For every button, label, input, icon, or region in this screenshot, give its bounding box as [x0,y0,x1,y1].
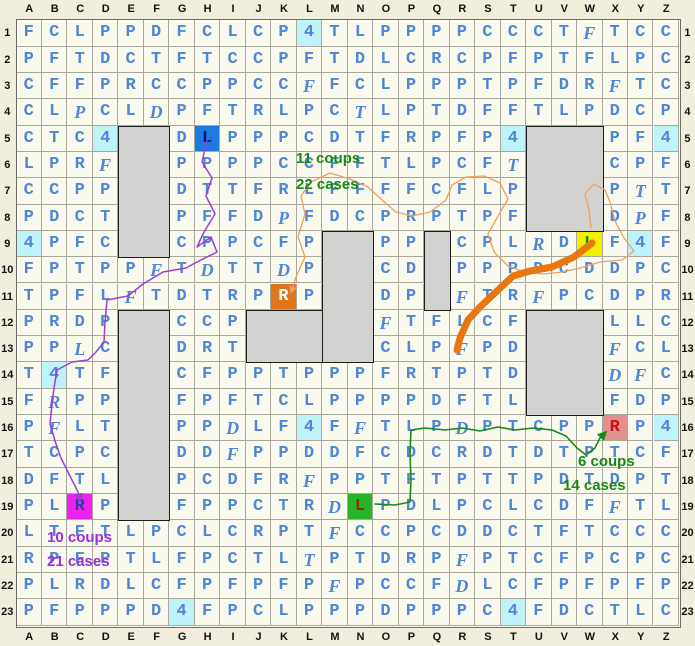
grid-cell[interactable]: P [399,73,424,99]
grid-cell[interactable]: C [17,178,42,204]
grid-cell[interactable]: R [271,178,296,204]
grid-cell[interactable]: C [144,73,169,99]
grid-cell[interactable]: P [399,389,424,415]
grid-cell[interactable]: P [297,573,322,599]
grid-cell[interactable]: L [373,73,398,99]
grid-cell[interactable]: P [399,231,424,257]
grid-cell[interactable]: P [424,152,449,178]
grid-cell[interactable]: T [93,205,118,231]
grid-cell[interactable]: F [195,362,220,388]
grid-cell[interactable]: T [246,389,271,415]
grid-cell[interactable]: D [373,284,398,310]
grid-cell[interactable]: P [424,126,449,152]
grid-cell[interactable]: F [450,389,475,415]
grid-cell[interactable]: D [399,257,424,283]
grid-cell[interactable]: T [220,257,245,283]
grid-cell[interactable]: D [526,441,551,467]
grid-cell[interactable]: C [399,573,424,599]
grid-cell[interactable]: C [169,520,194,546]
grid-cell[interactable]: P [399,99,424,125]
grid-cell[interactable]: P [195,73,220,99]
grid-cell[interactable]: P [373,205,398,231]
grid-cell[interactable]: C [220,520,245,546]
grid-cell[interactable]: D [552,599,577,625]
grid-cell[interactable]: D [475,441,500,467]
grid-cell[interactable]: F [450,178,475,204]
grid-cell[interactable]: L [399,415,424,441]
grid-cell[interactable]: D [271,257,296,283]
grid-cell[interactable]: C [348,520,373,546]
grid-cell[interactable]: T [348,126,373,152]
grid-cell[interactable]: F [246,468,271,494]
grid-cell[interactable]: T [475,362,500,388]
grid-cell[interactable]: P [475,231,500,257]
grid-cell[interactable]: P [577,99,602,125]
grid-cell[interactable]: P [93,389,118,415]
grid-cell[interactable]: L [399,152,424,178]
grid-cell[interactable]: P [169,415,194,441]
grid-cell[interactable]: C [220,547,245,573]
grid-cell[interactable]: R [271,468,296,494]
grid-cell[interactable]: P [603,573,628,599]
grid-cell[interactable]: T [246,547,271,573]
grid-cell[interactable]: P [348,362,373,388]
grid-cell[interactable]: P [628,284,653,310]
grid-cell[interactable]: T [271,494,296,520]
grid-cell[interactable]: T [67,47,92,73]
grid-cell[interactable]: C [348,73,373,99]
grid-cell[interactable]: C [373,520,398,546]
grid-cell[interactable]: C [450,152,475,178]
grid-cell[interactable]: P [322,468,347,494]
grid-cell[interactable]: C [373,336,398,362]
grid-cell[interactable]: P [220,494,245,520]
grid-cell[interactable]: D [475,520,500,546]
grid-cell[interactable]: D [144,99,169,125]
grid-cell[interactable]: F [169,389,194,415]
grid-cell[interactable]: L [42,99,67,125]
grid-cell[interactable]: D [603,362,628,388]
grid-cell[interactable]: C [67,126,92,152]
grid-cell[interactable]: C [654,20,679,46]
grid-cell[interactable]: L [195,520,220,546]
grid-cell[interactable]: D [501,362,526,388]
grid-cell[interactable]: P [322,362,347,388]
grid-cell[interactable]: P [424,205,449,231]
grid-cell[interactable]: T [603,599,628,625]
grid-cell[interactable]: T [118,547,143,573]
grid-cell[interactable]: F [271,573,296,599]
grid-cell[interactable]: F [654,152,679,178]
grid-cell[interactable]: D [577,257,602,283]
grid-cell[interactable]: T [348,99,373,125]
grid-cell[interactable]: D [169,284,194,310]
grid-cell[interactable]: P [450,468,475,494]
grid-cell[interactable]: L [501,231,526,257]
grid-cell[interactable]: D [322,441,347,467]
grid-cell[interactable]: T [144,284,169,310]
grid-cell[interactable]: P [17,494,42,520]
grid-cell[interactable]: C [603,547,628,573]
grid-cell[interactable]: C [93,336,118,362]
grid-cell[interactable]: C [654,547,679,573]
grid-cell[interactable]: P [475,47,500,73]
grid-cell[interactable]: L [42,573,67,599]
grid-cell[interactable]: R [297,494,322,520]
grid-cell[interactable]: D [603,205,628,231]
grid-cell[interactable]: T [552,47,577,73]
grid-cell[interactable]: L [424,494,449,520]
grid-cell[interactable]: R [399,547,424,573]
grid-cell[interactable]: L [628,310,653,336]
grid-cell[interactable]: P [577,415,602,441]
grid-cell[interactable]: L [475,573,500,599]
grid-cell[interactable]: C [118,47,143,73]
grid-cell[interactable]: T [399,310,424,336]
grid-cell[interactable]: F [552,520,577,546]
grid-cell[interactable]: D [424,389,449,415]
grid-cell[interactable]: 4 [501,599,526,625]
grid-cell[interactable]: R [195,336,220,362]
grid-cell[interactable]: P [17,310,42,336]
grid-cell[interactable]: T [526,99,551,125]
grid-cell[interactable]: P [475,336,500,362]
grid-cell[interactable]: 4 [169,599,194,625]
grid-cell[interactable]: D [42,205,67,231]
grid-cell[interactable]: T [195,178,220,204]
grid-cell[interactable]: C [169,310,194,336]
grid-cell[interactable]: C [475,310,500,336]
grid-cell[interactable]: P [552,284,577,310]
grid-cell[interactable]: F [628,362,653,388]
grid-cell[interactable]: F [322,573,347,599]
grid-cell[interactable]: F [67,73,92,99]
grid-cell[interactable]: P [67,389,92,415]
grid-cell[interactable]: P [271,205,296,231]
grid-cell[interactable]: P [67,599,92,625]
grid-cell[interactable]: F [93,362,118,388]
grid-cell[interactable]: C [373,257,398,283]
grid-cell[interactable]: F [577,494,602,520]
grid-cell[interactable]: P [399,520,424,546]
grid-cell[interactable]: P [297,257,322,283]
grid-cell[interactable]: L [654,336,679,362]
grid-cell[interactable]: D [220,468,245,494]
grid-cell[interactable]: P [501,178,526,204]
grid-cell[interactable]: F [67,231,92,257]
grid-cell[interactable]: C [501,573,526,599]
yellow-goal-L-cell[interactable]: L [577,231,602,257]
grid-cell[interactable]: P [577,547,602,573]
grid-cell[interactable]: P [67,178,92,204]
grid-cell[interactable]: D [246,205,271,231]
grid-cell[interactable]: F [169,47,194,73]
grid-cell[interactable]: P [42,336,67,362]
grid-cell[interactable]: P [17,47,42,73]
grid-cell[interactable]: P [246,152,271,178]
grid-cell[interactable]: P [373,20,398,46]
grid-cell[interactable]: L [373,99,398,125]
grid-cell[interactable]: C [654,310,679,336]
grid-cell[interactable]: C [603,152,628,178]
grid-cell[interactable]: P [220,73,245,99]
grid-cell[interactable]: F [246,178,271,204]
grid-cell[interactable]: P [271,47,296,73]
grid-cell[interactable]: R [450,441,475,467]
grid-cell[interactable]: C [475,20,500,46]
grid-cell[interactable]: R [67,573,92,599]
grid-cell[interactable]: T [475,73,500,99]
grid-cell[interactable]: T [526,520,551,546]
grid-cell[interactable]: C [526,494,551,520]
grid-cell[interactable]: P [373,494,398,520]
grid-cell[interactable]: C [246,231,271,257]
grid-cell[interactable]: T [654,178,679,204]
grid-cell[interactable]: D [195,441,220,467]
grid-cell[interactable]: D [169,126,194,152]
grid-cell[interactable]: D [322,494,347,520]
grid-cell[interactable]: F [144,257,169,283]
grid-cell[interactable]: P [118,599,143,625]
grid-cell[interactable]: D [450,520,475,546]
grid-cell[interactable]: L [93,468,118,494]
grid-cell[interactable]: C [654,362,679,388]
grid-cell[interactable]: P [220,362,245,388]
grid-cell[interactable]: T [322,47,347,73]
grid-cell[interactable]: C [577,599,602,625]
grid-cell[interactable]: F [654,205,679,231]
grid-cell[interactable]: F [552,547,577,573]
grid-cell[interactable]: P [246,284,271,310]
grid-cell[interactable]: D [552,494,577,520]
grid-cell[interactable]: F [42,47,67,73]
grid-cell[interactable]: 4 [297,415,322,441]
grid-cell[interactable]: T [246,257,271,283]
grid-cell[interactable]: F [526,73,551,99]
grid-cell[interactable]: F [603,389,628,415]
grid-cell[interactable]: D [93,47,118,73]
grid-cell[interactable]: 4 [654,126,679,152]
blue-start-L-cell[interactable]: L [195,126,220,152]
grid-cell[interactable]: D [169,441,194,467]
grid-cell[interactable]: P [552,415,577,441]
grid-cell[interactable]: C [654,47,679,73]
grid-cell[interactable]: P [246,573,271,599]
grid-cell[interactable]: P [195,389,220,415]
grid-cell[interactable]: F [220,441,245,467]
grid-cell[interactable]: P [399,20,424,46]
grid-cell[interactable]: L [17,520,42,546]
grid-cell[interactable]: C [297,126,322,152]
grid-cell[interactable]: C [424,441,449,467]
grid-cell[interactable]: P [195,547,220,573]
grid-cell[interactable]: C [628,99,653,125]
grid-cell[interactable]: P [628,547,653,573]
grid-cell[interactable]: F [450,126,475,152]
grid-cell[interactable]: T [195,284,220,310]
grid-cell[interactable]: T [603,20,628,46]
grid-cell[interactable]: T [322,20,347,46]
grid-cell[interactable]: L [501,389,526,415]
orange-start-R-cell[interactable]: R [271,284,296,310]
grid-cell[interactable]: C [348,205,373,231]
grid-cell[interactable]: C [17,126,42,152]
grid-cell[interactable]: P [195,573,220,599]
grid-cell[interactable]: F [118,284,143,310]
grid-cell[interactable]: F [67,284,92,310]
grid-cell[interactable]: C [271,73,296,99]
grid-cell[interactable]: L [552,99,577,125]
grid-cell[interactable]: D [552,231,577,257]
grid-cell[interactable]: D [399,494,424,520]
grid-cell[interactable]: F [297,73,322,99]
grid-cell[interactable]: D [195,257,220,283]
grid-cell[interactable]: F [628,573,653,599]
grid-cell[interactable]: C [654,599,679,625]
grid-cell[interactable]: P [297,284,322,310]
grid-cell[interactable]: P [118,20,143,46]
grid-cell[interactable]: P [475,126,500,152]
grid-cell[interactable]: C [654,257,679,283]
grid-cell[interactable]: T [42,126,67,152]
grid-cell[interactable]: L [118,99,143,125]
grid-cell[interactable]: F [654,441,679,467]
grid-cell[interactable]: R [17,547,42,573]
grid-cell[interactable]: P [17,573,42,599]
grid-cell[interactable]: T [628,178,653,204]
grid-cell[interactable]: D [628,389,653,415]
grid-cell[interactable]: D [348,47,373,73]
grid-cell[interactable]: F [348,441,373,467]
grid-cell[interactable]: R [501,284,526,310]
grid-cell[interactable]: C [373,441,398,467]
grid-cell[interactable]: C [195,20,220,46]
grid-cell[interactable]: D [603,257,628,283]
grid-cell[interactable]: R [399,362,424,388]
grid-cell[interactable]: 4 [501,126,526,152]
grid-cell[interactable]: F [42,73,67,99]
grid-cell[interactable]: F [271,415,296,441]
grid-cell[interactable]: P [93,494,118,520]
grid-cell[interactable]: T [552,20,577,46]
grid-cell[interactable]: F [501,205,526,231]
grid-cell[interactable]: C [271,152,296,178]
grid-cell[interactable]: P [399,599,424,625]
grid-cell[interactable]: R [42,389,67,415]
grid-cell[interactable]: L [93,284,118,310]
grid-cell[interactable]: F [373,310,398,336]
grid-cell[interactable]: T [628,73,653,99]
grid-cell[interactable]: L [271,547,296,573]
grid-cell[interactable]: P [93,73,118,99]
green-start-L-cell[interactable]: L [348,494,373,520]
grid-cell[interactable]: C [450,231,475,257]
grid-cell[interactable]: T [628,494,653,520]
grid-cell[interactable]: F [322,415,347,441]
grid-cell[interactable]: C [628,336,653,362]
grid-cell[interactable]: P [17,415,42,441]
grid-cell[interactable]: D [144,20,169,46]
grid-cell[interactable]: L [67,336,92,362]
grid-cell[interactable]: P [424,20,449,46]
grid-cell[interactable]: P [348,389,373,415]
grid-cell[interactable]: P [322,599,347,625]
grid-cell[interactable]: F [297,47,322,73]
grid-cell[interactable]: F [373,178,398,204]
grid-cell[interactable]: D [603,99,628,125]
grid-cell[interactable]: F [475,152,500,178]
grid-cell[interactable]: C [246,47,271,73]
grid-cell[interactable]: R [118,73,143,99]
grid-cell[interactable]: C [424,520,449,546]
grid-cell[interactable]: P [373,389,398,415]
grid-cell[interactable]: R [526,231,551,257]
grid-cell[interactable]: D [322,126,347,152]
grid-cell[interactable]: P [628,468,653,494]
grid-cell[interactable]: F [169,494,194,520]
grid-cell[interactable]: P [424,73,449,99]
grid-cell[interactable]: T [475,468,500,494]
grid-cell[interactable]: L [246,415,271,441]
grid-cell[interactable]: L [654,494,679,520]
red-goal-R-cell[interactable]: R [603,415,628,441]
grid-cell[interactable]: T [424,468,449,494]
grid-cell[interactable]: P [526,468,551,494]
grid-cell[interactable]: R [42,310,67,336]
grid-cell[interactable]: L [271,599,296,625]
grid-cell[interactable]: P [603,178,628,204]
grid-cell[interactable]: P [475,415,500,441]
grid-cell[interactable]: P [42,257,67,283]
grid-cell[interactable]: P [348,573,373,599]
grid-cell[interactable]: P [628,47,653,73]
grid-cell[interactable]: F [399,178,424,204]
grid-cell[interactable]: D [450,573,475,599]
grid-cell[interactable]: P [628,415,653,441]
grid-cell[interactable]: L [501,494,526,520]
magenta-goal-R-cell[interactable]: R [67,494,92,520]
grid-cell[interactable]: P [246,362,271,388]
grid-cell[interactable]: P [373,231,398,257]
grid-cell[interactable]: C [399,47,424,73]
grid-cell[interactable]: D [450,99,475,125]
grid-cell[interactable]: P [42,284,67,310]
grid-cell[interactable]: C [552,257,577,283]
grid-cell[interactable]: T [475,284,500,310]
grid-cell[interactable]: C [144,573,169,599]
grid-cell[interactable]: C [603,520,628,546]
grid-cell[interactable]: C [93,441,118,467]
grid-cell[interactable]: P [552,573,577,599]
grid-cell[interactable]: C [526,415,551,441]
grid-cell[interactable]: P [118,257,143,283]
grid-cell[interactable]: T [654,468,679,494]
grid-cell[interactable]: P [654,99,679,125]
grid-cell[interactable]: P [628,152,653,178]
grid-cell[interactable]: P [526,47,551,73]
grid-cell[interactable]: D [93,573,118,599]
grid-cell[interactable]: C [67,205,92,231]
grid-cell[interactable]: P [654,389,679,415]
grid-cell[interactable]: L [144,547,169,573]
grid-cell[interactable]: F [220,205,245,231]
grid-cell[interactable]: P [424,415,449,441]
grid-cell[interactable]: F [577,47,602,73]
grid-cell[interactable]: P [220,152,245,178]
grid-cell[interactable]: C [475,599,500,625]
grid-cell[interactable]: T [373,415,398,441]
grid-cell[interactable]: F [603,336,628,362]
